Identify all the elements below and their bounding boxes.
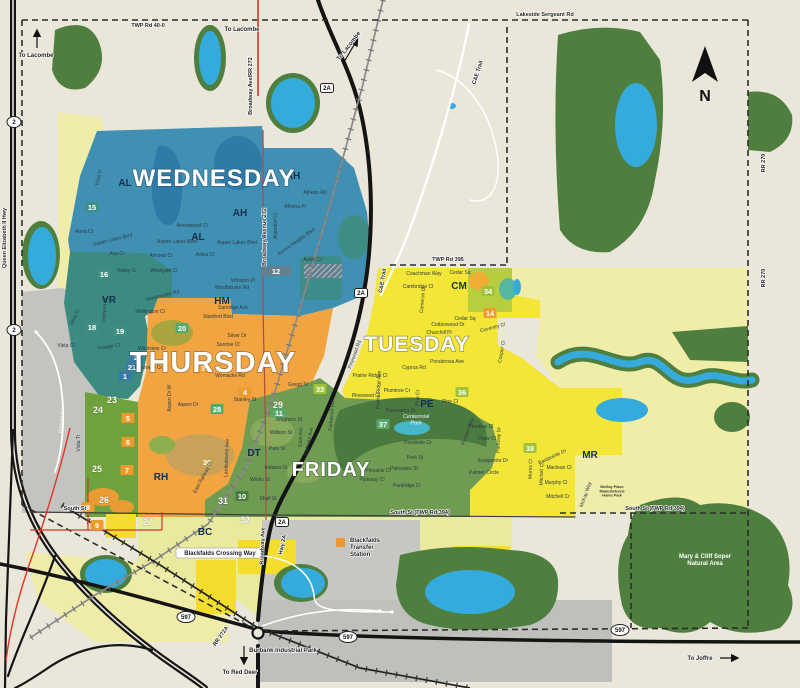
place-label-to-joffre: To Joffre <box>687 656 713 662</box>
street-label-allendorf-cl: Allendorf Cl <box>273 213 279 239</box>
zone-marker-38: 38 <box>526 444 534 453</box>
street-label-cedar-sq: Cedar Sq <box>449 270 470 276</box>
orange-patch-2 <box>110 500 134 514</box>
hwy-shield-label-597: 597 <box>343 635 354 641</box>
street-label-cambridge-cl: Cambridge Cl <box>403 284 434 290</box>
street-label-willson-st: Willson St <box>270 430 293 436</box>
zone-marker-29: 29 <box>273 400 283 410</box>
street-label-stanford-blvd: Stanford Blvd <box>203 314 233 320</box>
street-label-east-ave: East Ave <box>298 427 305 447</box>
zone-marker-33: 33 <box>316 385 324 394</box>
street-label-athens-rd: Athens Rd <box>303 190 327 196</box>
duncan-ave-road-dot <box>34 330 37 333</box>
road-label-rr-270: RR 270 <box>761 154 767 173</box>
street-label-winston-pl: Winston Pl <box>231 278 255 284</box>
forest-rr270 <box>714 402 750 432</box>
street-label-vista-cl: Vista Cl <box>57 343 74 349</box>
place-label-to-lacombe: To Lacombe <box>19 53 55 59</box>
area-code-pe-427: PE <box>420 399 434 410</box>
zone-marker-15: 15 <box>88 203 96 212</box>
road-label-twp-rd-40-0: TWP Rd 40-0 <box>131 23 165 29</box>
street-label-athena-pl: Athena Pl <box>284 204 306 210</box>
tint-rh-green <box>149 436 175 454</box>
area-code-rh-161: RH <box>154 472 168 483</box>
street-label-wellington-cl: Wellington Cl <box>135 309 164 315</box>
pond-bottom-center <box>425 570 515 614</box>
street-label-aspen-dr: Aspen Dr <box>178 402 199 408</box>
street-label-indiana-st: Indiana St <box>265 465 288 471</box>
street-label-plumtree-cr: Plumtree Cr <box>384 388 411 394</box>
street-label-westbrooke-rd: Westbrooke Rd <box>215 285 250 291</box>
road-label-queen-elizabeth-ii-hwy: Queen Elizabeth II Hwy <box>2 207 8 268</box>
street-label-gregg-st: Gregg St <box>288 382 309 388</box>
street-label-valley-cr: Valley Cr <box>117 268 137 274</box>
day-label-tuesday: TUESDAY <box>364 333 469 356</box>
roundabout <box>253 628 264 639</box>
street-label-pinewood-cl: Pinewood Cl <box>352 393 380 399</box>
area-code-ah-240: AH <box>233 208 247 219</box>
hwy-shield-label-2a: 2A <box>278 520 286 526</box>
street-label-maclean-cl: Maclean Cl <box>546 465 571 471</box>
day-label-wednesday: WEDNESDAY <box>133 165 296 192</box>
hwy-shield-label-2a: 2A <box>323 86 331 92</box>
zone-marker-31: 31 <box>218 496 228 506</box>
street-label-cottonwood-dr: Cottonwood Dr <box>431 322 465 328</box>
area-code-vr-109: VR <box>102 295 117 306</box>
street-label-piper-cl: Piper Cl <box>478 436 496 442</box>
hwy-shield-label-597: 597 <box>181 615 192 621</box>
transfer-loop-road-dot <box>390 610 393 613</box>
collection-zone-map[interactable]: N122115161819122028371133343638103034567… <box>0 0 800 688</box>
pond-2a <box>271 78 315 128</box>
street-label-murphy-cl: Murphy Cl <box>545 480 568 486</box>
zone-marker-9: 9 <box>95 521 99 530</box>
burbank-road-dot <box>378 609 381 612</box>
street-label-park-st: Park St <box>269 446 286 452</box>
zone-marker-19: 19 <box>116 327 124 336</box>
street-label-aztec-cr: Aztec Cr <box>303 257 323 263</box>
area-code-al-125: AL <box>118 178 131 189</box>
street-label-silver-dr: Silver Dr <box>227 333 247 339</box>
street-label-pondside-cr: Pondside Cr <box>404 440 432 446</box>
zone-marker-1: 1 <box>123 372 127 381</box>
zone-marker-25: 25 <box>92 464 102 474</box>
zone-marker-26: 26 <box>99 495 109 505</box>
street-label-pine-cl: Pine Cl <box>442 399 458 405</box>
street-label-ava-cr: Ava Cr <box>109 251 125 257</box>
area-code-al-198: AL <box>191 232 204 243</box>
pond-topleft <box>199 31 221 85</box>
road-label-twp-rd-395: TWP Rd 395 <box>432 257 464 263</box>
street-label-aspen-dr-w: Aspen Dr W <box>167 384 173 411</box>
street-label-coachman-way: Coachman Way <box>406 271 442 277</box>
transfer-station-icon <box>336 538 345 547</box>
street-label-mitchell-cr: Mitchell Cr <box>546 494 570 500</box>
road-label-south-st: South St <box>64 506 87 512</box>
zone-marker-18: 18 <box>88 323 96 332</box>
street-label-ponderosa-ave: Ponderosa Ave <box>430 359 464 365</box>
street-label-winks-st: Winks St <box>250 477 270 483</box>
street-label-vista-tr: Vista Tr <box>76 434 82 451</box>
zone-marker-24: 24 <box>93 405 103 415</box>
area-code-cm-459: CM <box>451 281 467 292</box>
place-label-to-lacombe: To Lacombe <box>225 27 261 33</box>
zone-marker-10: 10 <box>238 492 246 501</box>
area-code-hm-222: HM <box>214 296 230 307</box>
zone-marker-16: 16 <box>100 270 108 279</box>
zone-marker-36: 36 <box>458 388 466 397</box>
zone-marker-23: 23 <box>107 395 117 405</box>
street-label-shull-st: Shull St <box>259 496 277 502</box>
day-label-thursday: THURSDAY <box>130 347 296 379</box>
zone-marker-27: 27 <box>143 517 153 527</box>
pond-left <box>28 227 56 285</box>
area-code-bc-205: BC <box>198 527 212 538</box>
zone-marker-5: 5 <box>126 414 130 423</box>
zone-marker-12: 12 <box>272 267 280 276</box>
street-label-palmer-circle: Palmer Circle <box>469 470 499 476</box>
bright-yellow-4 <box>196 560 236 614</box>
place-label-mckay-place: McKay PlaceManufacturedHome Park <box>600 485 626 498</box>
area-code-mr-590: MR <box>582 450 598 461</box>
street-label-waghorn-st: Waghorn St <box>276 417 303 423</box>
zone-marker-14: 14 <box>486 309 495 318</box>
pond-mid-east <box>596 398 648 422</box>
street-label-arrowwood-cl: Arrowwood Cl <box>176 223 207 229</box>
compass-north-label: N <box>699 88 711 105</box>
street-label-almond-cr: Almond Cr <box>149 253 173 259</box>
road-label-south-st-twp-rd-394: South St (TWP Rd 394) <box>390 510 450 516</box>
zone-marker-32: 32 <box>240 515 250 525</box>
area-code-dt-254: DT <box>247 448 260 459</box>
tint-ah <box>338 215 370 259</box>
zone-marker-34: 34 <box>484 287 493 296</box>
zone-marker-8: 8 <box>86 503 90 512</box>
zone-marker-7: 7 <box>125 466 129 475</box>
road-label-south-st-twp-rd-394: South St (TWP Rd 394) <box>625 506 685 512</box>
place-label-burbank-industrial-park: Burbank Industrial Park <box>249 648 317 654</box>
street-label-parkridge-cr: Parkridge Cr <box>393 483 421 489</box>
road-label-rr-270: RR 270 <box>761 269 767 288</box>
block-34-blue <box>513 279 521 295</box>
day-label-friday: FRIDAY <box>292 459 371 481</box>
road-label-broadway-ave-rr-272: Broadway Ave/RR 272 <box>248 57 254 115</box>
street-label-morris-cl: Morris Cl <box>528 459 535 479</box>
hwy-shield-label-597: 597 <box>615 628 626 634</box>
street-label-aspen-lakes-blvd: Aspen Lakes Blvd <box>217 240 257 246</box>
street-label-cyprus-rd: Cyprus Rd <box>402 365 426 371</box>
zone-marker-20: 20 <box>178 324 186 333</box>
place-label-to-red-deer: To Red Deer <box>223 670 259 676</box>
place-label-blackfalds-crossing-way: Blackfalds Crossing Way <box>184 551 256 557</box>
street-label-adina-cl: Adina Cl <box>196 252 215 258</box>
street-label-anna-cl: Anna Cl <box>75 229 93 235</box>
street-label-palisades-st: Palisades St <box>390 466 418 472</box>
zone-marker-37: 37 <box>379 420 387 429</box>
zone-marker-28: 28 <box>213 405 221 414</box>
hwy-shield-label-2a: 2A <box>357 291 365 297</box>
street-label-westgate-cr: Westgate Cr <box>150 268 178 274</box>
road-label-lakeside-sergeant-rd: Lakeside Sergeant Rd <box>516 12 573 18</box>
street-label-parkway-dr: Parkway Dr <box>496 427 503 453</box>
zone-marker-6: 6 <box>126 438 130 447</box>
map-container: N122115161819122028371133343638103034567… <box>0 0 800 688</box>
pond-northeast <box>615 83 657 167</box>
street-label-eastpointe-dr: Eastpointe Dr <box>478 458 509 464</box>
road-label-broadway-avenue-272: Broadway Avenue 272 <box>262 208 268 266</box>
street-label-stanley-st: Stanley St <box>234 397 257 403</box>
street-label-park-st: Park St <box>407 455 424 461</box>
